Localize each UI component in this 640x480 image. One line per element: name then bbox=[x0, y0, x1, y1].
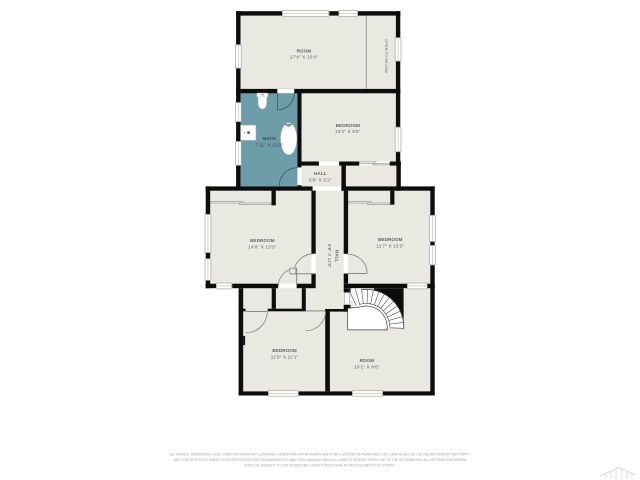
svg-text:BEDROOM: BEDROOM bbox=[250, 238, 275, 243]
svg-text:11'7" X 13'3": 11'7" X 13'3" bbox=[376, 243, 404, 248]
svg-text:BEDROOM: BEDROOM bbox=[272, 348, 297, 353]
svg-text:ROOM: ROOM bbox=[297, 48, 312, 53]
svg-text:13'2" X 9'5": 13'2" X 9'5" bbox=[335, 129, 361, 134]
svg-text:10'1" X 8'6": 10'1" X 8'6" bbox=[354, 364, 380, 369]
svg-text:14'0" X 13'3": 14'0" X 13'3" bbox=[248, 244, 276, 249]
svg-text:7'11" X 12'0": 7'11" X 12'0" bbox=[255, 143, 283, 148]
svg-text:BATH: BATH bbox=[263, 136, 276, 141]
svg-text:OPEN TO BELOW: OPEN TO BELOW bbox=[384, 39, 389, 73]
svg-text:SHALL BE SUBJECT TO THE TERMS: SHALL BE SUBJECT TO THE TERMS AND CONDIT… bbox=[244, 463, 396, 467]
svg-text:17'4" X 10'4": 17'4" X 10'4" bbox=[290, 55, 318, 60]
svg-text:6'0" X 2'2": 6'0" X 2'2" bbox=[309, 178, 332, 183]
svg-text:HALL: HALL bbox=[334, 250, 339, 263]
svg-text:5'6" X 11'0": 5'6" X 11'0" bbox=[327, 244, 332, 268]
svg-text:11'9" X 11'1": 11'9" X 11'1" bbox=[271, 355, 299, 360]
svg-text:BEDROOM: BEDROOM bbox=[336, 123, 361, 128]
svg-text:HALL: HALL bbox=[314, 171, 327, 176]
svg-text:ALL IMAGES, DIMENSIONS, AND OT: ALL IMAGES, DIMENSIONS, AND OTHER INFORM… bbox=[169, 453, 470, 457]
svg-text:BEDROOM: BEDROOM bbox=[378, 237, 403, 242]
svg-text:ROOM: ROOM bbox=[360, 358, 375, 363]
svg-text:NEXT DOOR PHOTOS MAKES NO REPR: NEXT DOOR PHOTOS MAKES NO REPRESENTATION… bbox=[174, 458, 467, 462]
